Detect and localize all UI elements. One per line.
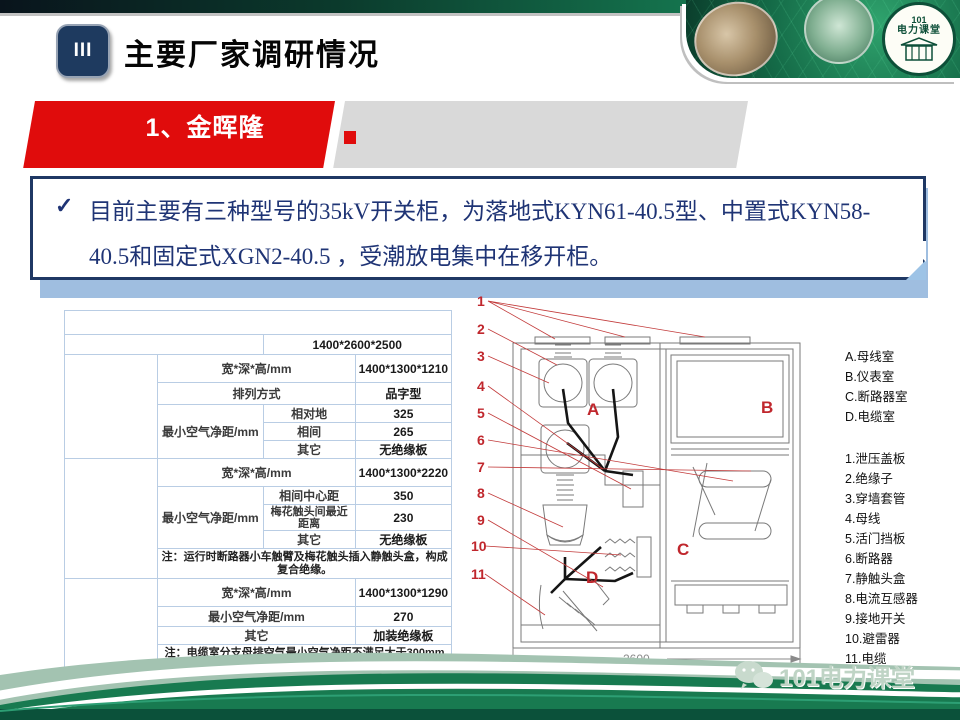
- overall-dims-label: 宽*深*高/mm: [65, 335, 264, 355]
- breaker-row-key: 梅花触头间最近距离: [263, 505, 355, 531]
- breaker-row-key: 其它: [263, 531, 355, 549]
- red-square-marker: [344, 131, 356, 144]
- page-title: 主要厂家调研情况: [124, 30, 380, 74]
- breaker-dims-label: 宽*深*高/mm: [158, 459, 356, 487]
- busbar-row-key: 相间: [263, 423, 355, 441]
- diagram-number-7: 7: [477, 459, 485, 475]
- cable-dims-label: 宽*深*高/mm: [158, 579, 356, 607]
- diagram-number-1: 1: [477, 293, 485, 309]
- wechat-icon: [733, 659, 775, 693]
- diagram-number-6: 6: [477, 432, 485, 448]
- section-banner-gray: [333, 101, 748, 168]
- watermark-text: 101电力课堂: [779, 658, 915, 693]
- diagram-number-10: 10: [471, 538, 487, 554]
- breaker-row-val: 无绝缘板: [355, 531, 451, 549]
- diagram-legend: A.母线室 B.仪表室 C.断路器室 D.电缆室 1.泄压盖板 2.绝缘子 3.…: [845, 347, 955, 669]
- cable-dims-value: 1400*1300*1290: [355, 579, 451, 607]
- diagram-number-8: 8: [477, 485, 485, 501]
- cable-clearance-value: 270: [355, 607, 451, 627]
- busbar-row-val: 325: [355, 405, 451, 423]
- legend-part: 9.接地开关: [845, 609, 955, 629]
- diagram-number-3: 3: [477, 348, 485, 364]
- legend-part: 4.母线: [845, 509, 955, 529]
- legend-part: 2.绝缘子: [845, 469, 955, 489]
- breaker-row-val: 350: [355, 487, 451, 505]
- breaker-row-key: 相间中心距: [263, 487, 355, 505]
- legend-part: 7.静触头盒: [845, 569, 955, 589]
- section-busbar: 母线室: [65, 355, 158, 459]
- diagram-number-2: 2: [477, 321, 485, 337]
- diagram-letter-D: D: [586, 568, 598, 587]
- slide: 101 电力课堂 III 主要厂家调研情况 1、金晖隆 ✓ 目前主要有三种型号的…: [0, 0, 960, 720]
- legend-room: B.仪表室: [845, 367, 955, 387]
- diagram-number-4: 4: [477, 378, 485, 394]
- diagram-number-11: 11: [471, 566, 486, 582]
- busbar-row-key: 其它: [263, 441, 355, 459]
- chapter-badge: III: [56, 24, 110, 78]
- table-title: KYN58-40.5中置式开关柜 (典型电缆进出线柜型): [65, 311, 452, 335]
- legend-room: D.电缆室: [845, 407, 955, 427]
- legend-room: A.母线室: [845, 347, 955, 367]
- legend-part: 5.活门挡板: [845, 529, 955, 549]
- breaker-row-val: 230: [355, 505, 451, 531]
- cable-clearance-label: 最小空气净距/mm: [158, 607, 356, 627]
- cable-other-value: 加装绝缘板: [355, 627, 451, 645]
- busbar-dims-value: 1400*1300*1210: [355, 355, 451, 383]
- bullet-text: 目前主要有三种型号的35kV开关柜，为落地式KYN61-40.5型、中置式KYN…: [89, 189, 919, 279]
- busbar-arrange-label: 排列方式: [158, 383, 356, 405]
- busbar-row-val: 265: [355, 423, 451, 441]
- chapter-number: III: [74, 40, 93, 62]
- busbar-dims-label: 宽*深*高/mm: [158, 355, 356, 383]
- legend-room: C.断路器室: [845, 387, 955, 407]
- diagram-number-9: 9: [477, 512, 485, 528]
- bullet-line-2: 40.5和固定式XGN2-40.5 ，受潮放电集中在移开柜。: [89, 234, 919, 279]
- check-icon: ✓: [55, 193, 73, 219]
- legend-gap: [845, 427, 955, 449]
- busbar-clearance-label: 最小空气净距/mm: [158, 405, 263, 459]
- busbar-row-key: 相对地: [263, 405, 355, 423]
- legend-part: 1.泄压盖板: [845, 449, 955, 469]
- section-title: 1、金晖隆: [35, 108, 325, 144]
- diagram-letter-A: A: [587, 400, 599, 419]
- switchgear-cross-section-diagram: 1 2 3 4 5 6 7 8 9 10 11 A B C D 2600: [455, 285, 850, 685]
- section-breaker: 断路器室: [65, 459, 158, 579]
- watermark: 101电力课堂: [733, 658, 915, 693]
- diagram-letter-C: C: [677, 540, 689, 559]
- breaker-clearance-label: 最小空气净距/mm: [158, 487, 263, 549]
- breaker-dims-value: 1400*1300*2220: [355, 459, 451, 487]
- legend-part: 6.断路器: [845, 549, 955, 569]
- diagram-number-5: 5: [477, 405, 485, 421]
- diagram-letter-B: B: [761, 398, 773, 417]
- busbar-arrange-value: 品字型: [355, 383, 451, 405]
- bullet-card: ✓ 目前主要有三种型号的35kV开关柜，为落地式KYN61-40.5型、中置式K…: [30, 176, 926, 280]
- logo-text-name: 电力课堂: [897, 25, 941, 36]
- legend-part: 8.电流互感器: [845, 589, 955, 609]
- logo-text-101: 101: [911, 15, 926, 25]
- spec-table: KYN58-40.5中置式开关柜 (典型电缆进出线柜型) 宽*深*高/mm 14…: [64, 310, 452, 675]
- bullet-line-1: 目前主要有三种型号的35kV开关柜，为落地式KYN61-40.5型、中置式KYN…: [89, 189, 919, 234]
- breaker-note: 注：运行时断路器小车触臂及梅花触头插入静触头盒，构成复合绝缘。: [158, 549, 452, 579]
- pavilion-icon: [899, 37, 939, 63]
- cable-other-label: 其它: [158, 627, 356, 645]
- brand-logo: 101 电力课堂: [882, 2, 956, 76]
- overall-dims-value: 1400*2600*2500: [263, 335, 452, 355]
- legend-part: 3.穿墙套管: [845, 489, 955, 509]
- busbar-row-val: 无绝缘板: [355, 441, 451, 459]
- corner-banner: 101 电力课堂: [686, 0, 960, 78]
